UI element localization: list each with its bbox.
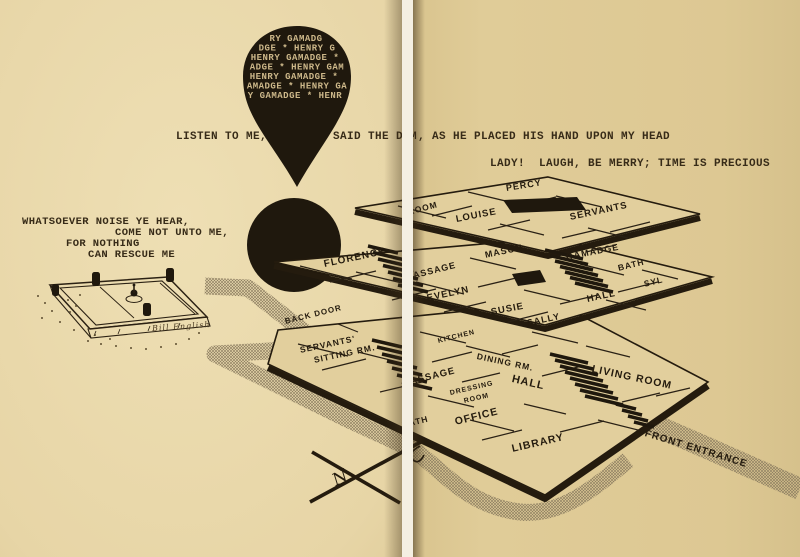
gutter-shadow-right xyxy=(413,0,425,557)
quote-lady: LADY! LAUGH, BE MERRY; TIME IS PRECIOUS xyxy=(490,158,770,170)
page-gutter xyxy=(402,0,413,557)
garden-pool-illustration xyxy=(37,268,210,350)
balloon-text-line: RY GAMADG xyxy=(269,34,322,44)
balloon-text-line: DGE * HENRY G xyxy=(259,44,336,54)
quote-listen-left: LISTEN TO ME, xyxy=(176,131,267,143)
exclamation-balloon: RY GAMADG DGE * HENRY G HENRY GAMADGE * … xyxy=(243,26,351,187)
balloon-text-line: HENRY GAMADGE * xyxy=(250,72,339,82)
quote-listen-right: , AS HE PLACED HIS HAND UPON MY HEAD xyxy=(418,131,670,143)
gutter-shadow-left xyxy=(384,0,402,557)
fountain-icon xyxy=(126,284,142,303)
quote-noise-line4: CAN RESCUE ME xyxy=(88,249,175,261)
balloon-text-line: HENRY GAMADGE * xyxy=(251,53,340,63)
garden-posts xyxy=(52,268,174,316)
balloon-text-line: AMADGE * HENRY GA xyxy=(247,82,347,92)
book-endpaper-scan: RY GAMADG DGE * HENRY G HENRY GAMADGE * … xyxy=(0,0,800,557)
balloon-text-line: ADGE * HENRY GAM xyxy=(250,63,344,73)
balloon-text-line: Y GAMADGE * HENR xyxy=(248,91,343,101)
compass-n-letter: N xyxy=(328,465,352,491)
